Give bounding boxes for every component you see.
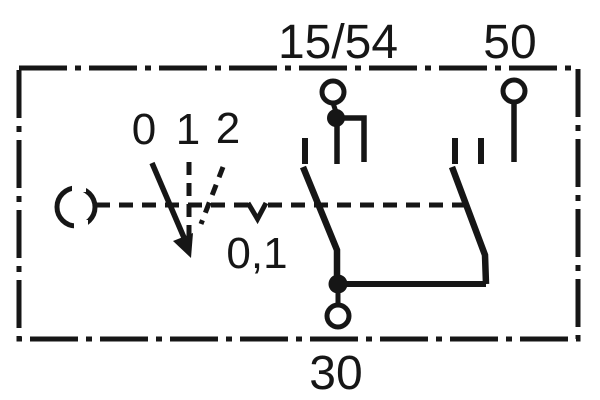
terminal-30-assembly <box>327 293 349 327</box>
key-actuator-icon <box>57 183 95 230</box>
position-label-0: 0 <box>132 105 156 154</box>
terminal-15-54-assembly <box>305 81 364 164</box>
position-label-2: 2 <box>216 104 240 153</box>
switch-blade-right <box>452 167 486 284</box>
mechanical-link-line <box>96 203 464 219</box>
position-pointer-line <box>152 163 185 240</box>
detent-notch <box>248 203 266 219</box>
switch-blades <box>303 167 486 294</box>
terminal-50-assembly <box>455 80 525 164</box>
actuator-circle-bottom-gap <box>74 220 88 230</box>
switch-blade-left <box>303 167 337 277</box>
ignition-switch-schematic: 15/54 50 30 0 1 2 0,1 <box>0 0 600 400</box>
terminal-30-circle <box>327 305 349 327</box>
terminal-50-circle <box>503 80 525 102</box>
terminal-label-50: 50 <box>483 16 536 69</box>
position-label-1: 1 <box>176 105 200 154</box>
schematic-canvas: 15/54 50 30 0 1 2 0,1 <box>0 0 600 400</box>
position-2-dashed-line <box>201 167 223 224</box>
terminal-15-54-circle <box>322 81 344 103</box>
terminal-label-30: 30 <box>309 347 362 400</box>
common-junction-dot <box>329 275 348 294</box>
terminal-label-15-54: 15/54 <box>278 16 398 69</box>
position-indicator: 0 1 2 <box>132 104 240 258</box>
detent-label: 0,1 <box>226 229 287 278</box>
actuator-circle-top-gap <box>72 183 86 192</box>
